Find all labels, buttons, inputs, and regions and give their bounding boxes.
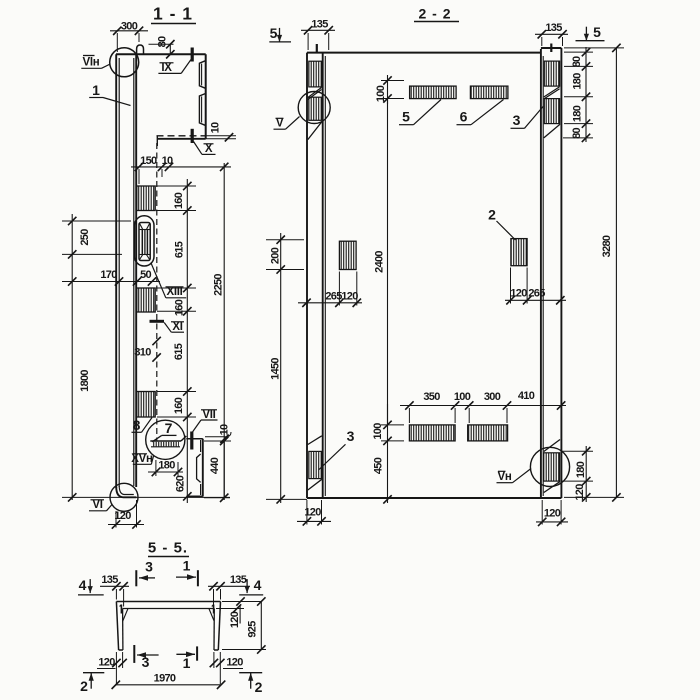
svg-text:4: 4	[79, 577, 87, 593]
svg-text:250: 250	[79, 229, 91, 246]
svg-text:Vн: Vн	[497, 471, 511, 483]
svg-text:10: 10	[210, 122, 222, 133]
svg-text:IX: IX	[161, 62, 172, 74]
svg-text:180: 180	[575, 461, 587, 478]
svg-text:10: 10	[219, 424, 231, 435]
svg-text:265: 265	[528, 288, 545, 300]
svg-text:5: 5	[593, 24, 601, 40]
svg-text:135: 135	[545, 22, 562, 34]
svg-text:620: 620	[175, 475, 187, 492]
svg-text:VI: VI	[92, 499, 102, 511]
svg-text:1800: 1800	[79, 370, 91, 392]
svg-text:V: V	[276, 118, 284, 130]
svg-text:3: 3	[347, 428, 355, 444]
svg-text:170: 170	[100, 269, 117, 281]
svg-text:3280: 3280	[601, 235, 613, 257]
svg-text:135: 135	[311, 19, 328, 31]
svg-text:440: 440	[209, 457, 221, 474]
svg-text:200: 200	[270, 247, 282, 264]
svg-text:7: 7	[165, 420, 173, 436]
svg-text:1: 1	[183, 558, 191, 574]
svg-text:1: 1	[92, 82, 100, 98]
svg-text:1: 1	[183, 655, 191, 671]
svg-text:1970: 1970	[154, 673, 176, 685]
svg-text:80: 80	[157, 36, 169, 47]
svg-text:120: 120	[341, 291, 358, 303]
svg-text:615: 615	[174, 241, 186, 258]
svg-text:1450: 1450	[270, 358, 282, 380]
svg-text:50: 50	[140, 269, 151, 281]
svg-text:300: 300	[484, 391, 501, 403]
svg-text:XVн: XVн	[131, 453, 153, 465]
svg-text:180: 180	[158, 460, 175, 472]
svg-text:180: 180	[572, 105, 584, 122]
svg-text:5 - 5.: 5 - 5.	[148, 540, 188, 557]
svg-text:2: 2	[488, 207, 496, 223]
svg-text:120: 120	[229, 611, 241, 628]
svg-text:4: 4	[254, 577, 262, 593]
svg-text:80: 80	[571, 128, 583, 139]
svg-text:3: 3	[513, 112, 521, 128]
svg-text:350: 350	[423, 391, 440, 403]
svg-text:8: 8	[133, 417, 141, 433]
svg-text:135: 135	[101, 574, 118, 586]
svg-text:VII: VII	[202, 409, 215, 421]
svg-text:X: X	[205, 143, 213, 155]
svg-text:135: 135	[230, 574, 247, 586]
svg-text:450: 450	[373, 457, 385, 474]
svg-text:2 - 2: 2 - 2	[418, 6, 451, 22]
svg-text:2: 2	[80, 678, 88, 694]
svg-text:2: 2	[255, 679, 263, 695]
svg-text:1 - 1: 1 - 1	[153, 4, 193, 24]
svg-text:5: 5	[270, 25, 278, 41]
svg-text:410: 410	[518, 390, 535, 402]
svg-text:2400: 2400	[374, 251, 386, 273]
svg-text:160: 160	[173, 397, 185, 414]
svg-text:6: 6	[460, 109, 468, 125]
svg-text:100: 100	[372, 423, 384, 440]
svg-text:160: 160	[173, 192, 185, 209]
svg-text:120: 120	[226, 657, 243, 669]
svg-text:120: 120	[114, 510, 131, 522]
svg-text:310: 310	[134, 347, 151, 359]
svg-text:2250: 2250	[213, 274, 225, 296]
svg-text:80: 80	[571, 56, 583, 67]
svg-text:3: 3	[145, 559, 153, 575]
svg-text:100: 100	[375, 85, 387, 102]
svg-text:5: 5	[402, 109, 410, 125]
svg-text:150: 150	[140, 155, 157, 167]
svg-text:160: 160	[174, 299, 186, 316]
svg-text:615: 615	[173, 343, 185, 360]
svg-text:XI: XI	[172, 321, 182, 333]
svg-text:VIн: VIн	[83, 57, 100, 69]
svg-text:100: 100	[454, 391, 471, 403]
svg-text:180: 180	[572, 73, 584, 90]
svg-text:925: 925	[247, 621, 259, 638]
svg-text:120: 120	[574, 484, 586, 501]
